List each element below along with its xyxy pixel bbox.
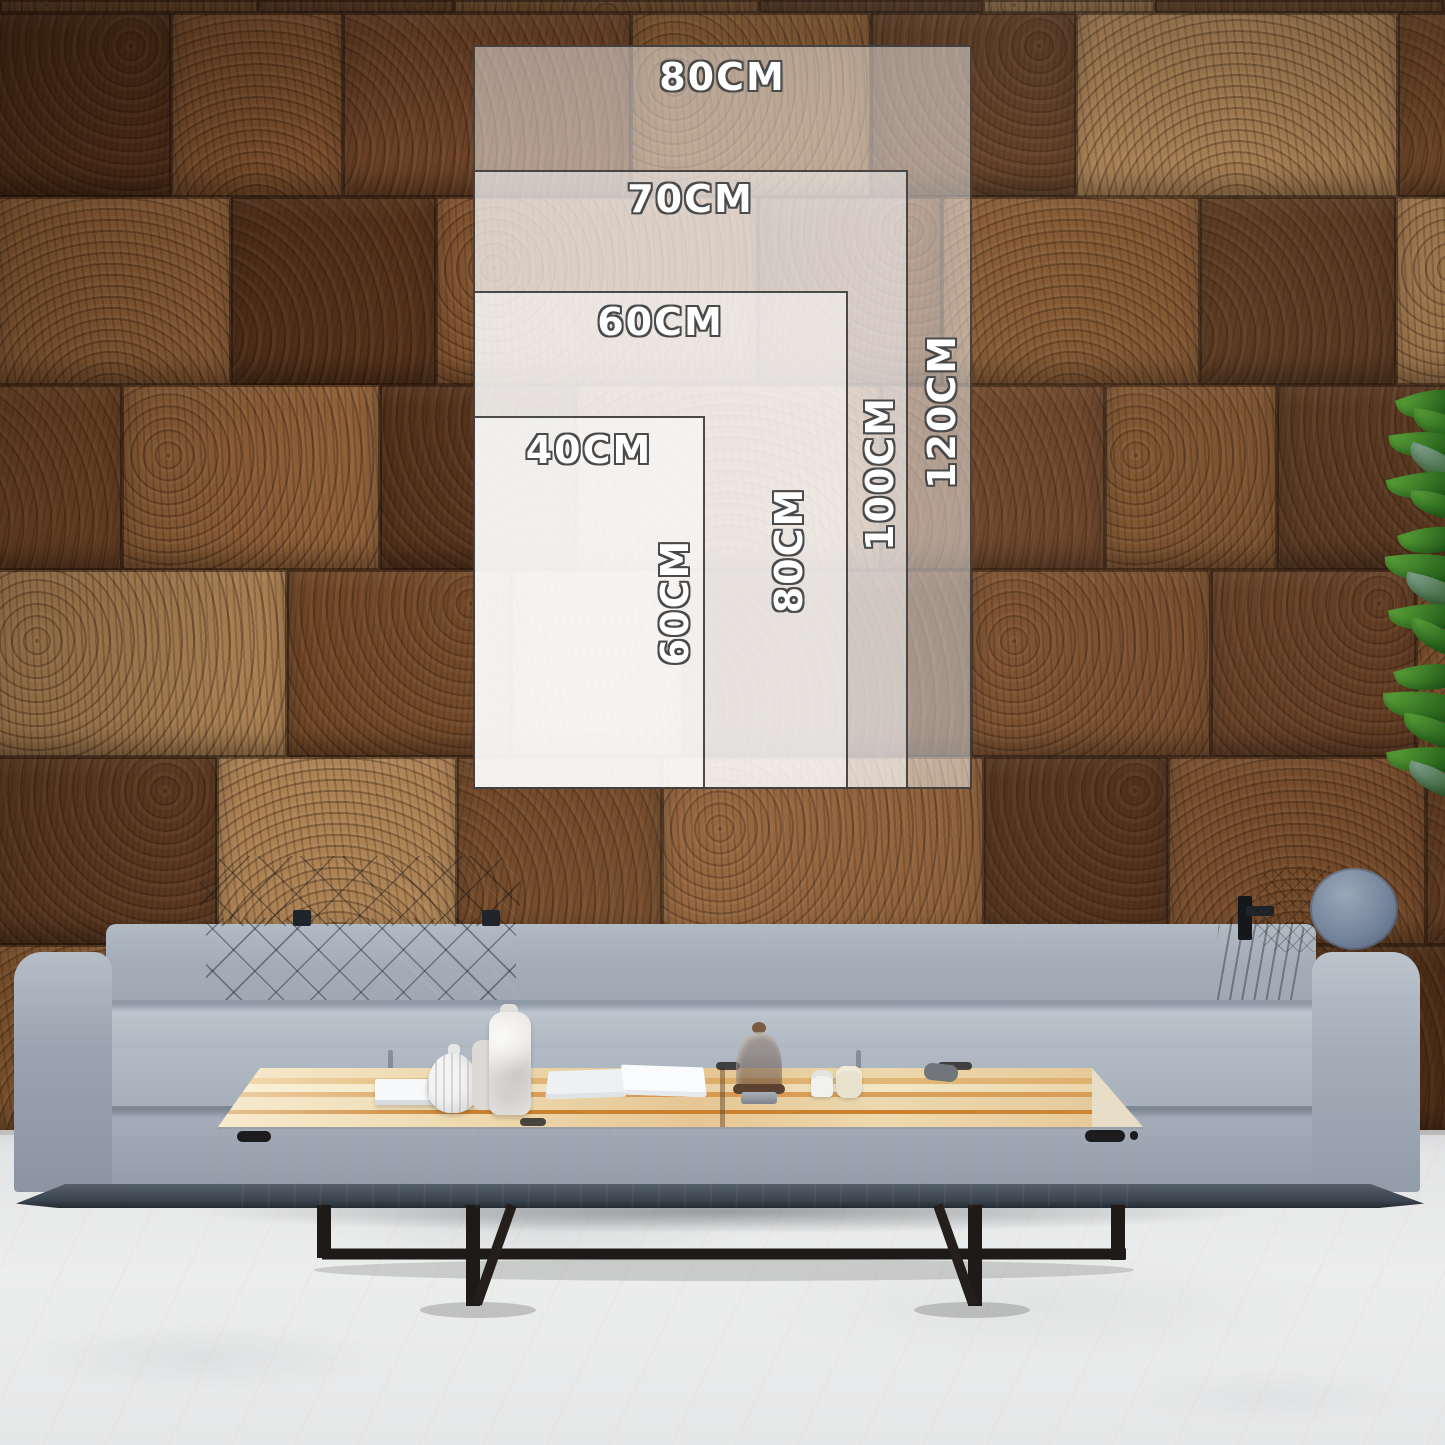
wood-block	[1211, 570, 1416, 757]
wood-block	[971, 570, 1211, 757]
wood-block	[436, 197, 758, 385]
wood-block	[662, 757, 984, 945]
wood-block	[1398, 13, 1445, 197]
wood-block	[295, 945, 479, 1135]
wood-block	[1238, 945, 1445, 1135]
wood-block	[759, 0, 983, 13]
wood-block	[933, 945, 1238, 1135]
wood-block	[231, 197, 436, 385]
wood-block	[1277, 385, 1445, 570]
wood-block	[0, 570, 287, 757]
wood-block	[0, 945, 295, 1135]
wood-block	[1416, 570, 1445, 757]
wood-block	[1200, 197, 1396, 385]
floor-veining	[0, 1130, 1445, 1445]
wood-block-wall	[0, 0, 1445, 1135]
wood-block	[511, 570, 683, 757]
wood-block	[1426, 757, 1445, 945]
wood-block	[217, 757, 457, 945]
wood-block	[457, 757, 662, 945]
wood-block	[380, 385, 576, 570]
wood-block	[0, 385, 122, 570]
wood-block	[942, 197, 1200, 385]
wood-block	[343, 13, 631, 197]
product-size-guide-scene: 80CM 120CM 70CM 100CM 60CM 80CM 40CM 60C…	[0, 0, 1445, 1445]
wood-block	[122, 385, 380, 570]
wood-block	[0, 13, 171, 197]
wood-block	[287, 570, 511, 757]
wood-block	[479, 945, 737, 1135]
wood-block	[171, 13, 343, 197]
wood-block	[683, 570, 971, 757]
wood-block	[1076, 13, 1398, 197]
wood-block	[258, 0, 454, 13]
wood-block	[1396, 197, 1445, 385]
wood-block	[1105, 385, 1277, 570]
wood-block	[454, 0, 759, 13]
wood-block	[576, 385, 881, 570]
wood-block	[0, 0, 258, 13]
wood-block	[758, 197, 942, 385]
wood-block	[881, 385, 1105, 570]
wood-block	[984, 757, 1168, 945]
wood-block	[983, 0, 1155, 13]
wood-block	[0, 197, 231, 385]
wood-block	[631, 13, 871, 197]
wood-block	[737, 945, 933, 1135]
wood-block	[1168, 757, 1426, 945]
wood-block	[871, 13, 1076, 197]
wood-block	[1155, 0, 1443, 13]
wood-block	[0, 757, 217, 945]
